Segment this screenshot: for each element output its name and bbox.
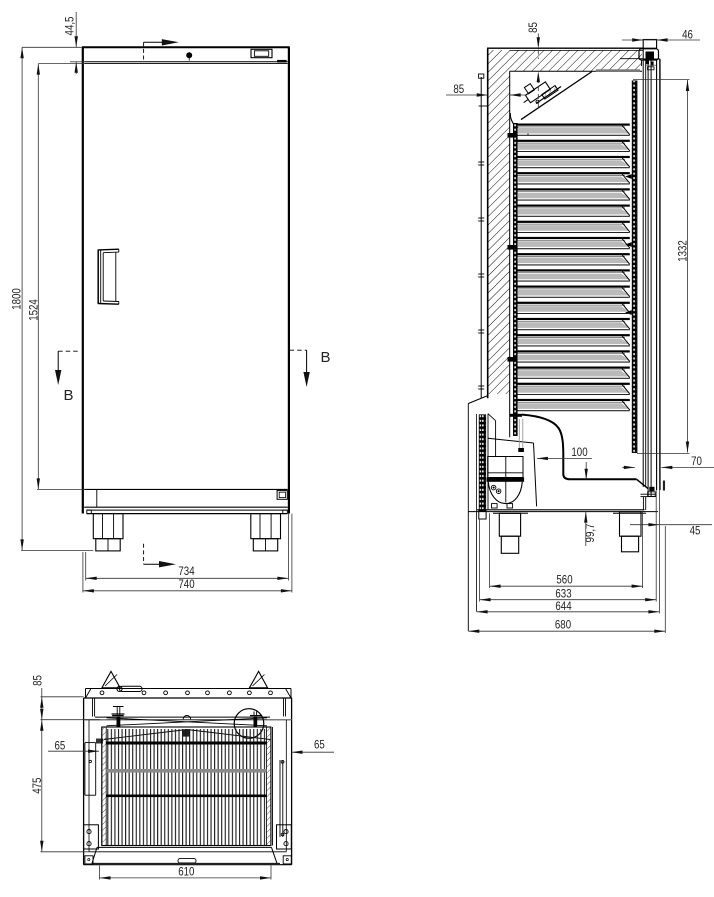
svg-text:475: 475 — [30, 777, 44, 794]
svg-text:610: 610 — [178, 865, 195, 879]
svg-text:560: 560 — [556, 573, 573, 587]
svg-text:B: B — [63, 387, 73, 404]
svg-text:65: 65 — [55, 738, 66, 752]
svg-text:I: I — [662, 478, 666, 495]
svg-text:46: 46 — [682, 28, 693, 42]
svg-text:1800: 1800 — [10, 288, 24, 310]
svg-text:85: 85 — [453, 82, 464, 96]
svg-text:100: 100 — [571, 445, 588, 459]
svg-text:70: 70 — [691, 454, 702, 468]
svg-text:644: 644 — [555, 599, 572, 613]
svg-text:85: 85 — [31, 675, 45, 686]
svg-text:740: 740 — [178, 577, 195, 591]
svg-text:45: 45 — [690, 524, 701, 538]
svg-text:85: 85 — [526, 22, 540, 33]
svg-text:734: 734 — [178, 564, 195, 578]
svg-text:680: 680 — [555, 618, 572, 632]
svg-text:65: 65 — [314, 738, 325, 752]
svg-text:B: B — [320, 349, 330, 366]
svg-text:44,5: 44,5 — [63, 16, 77, 35]
svg-text:99,7: 99,7 — [585, 524, 597, 543]
